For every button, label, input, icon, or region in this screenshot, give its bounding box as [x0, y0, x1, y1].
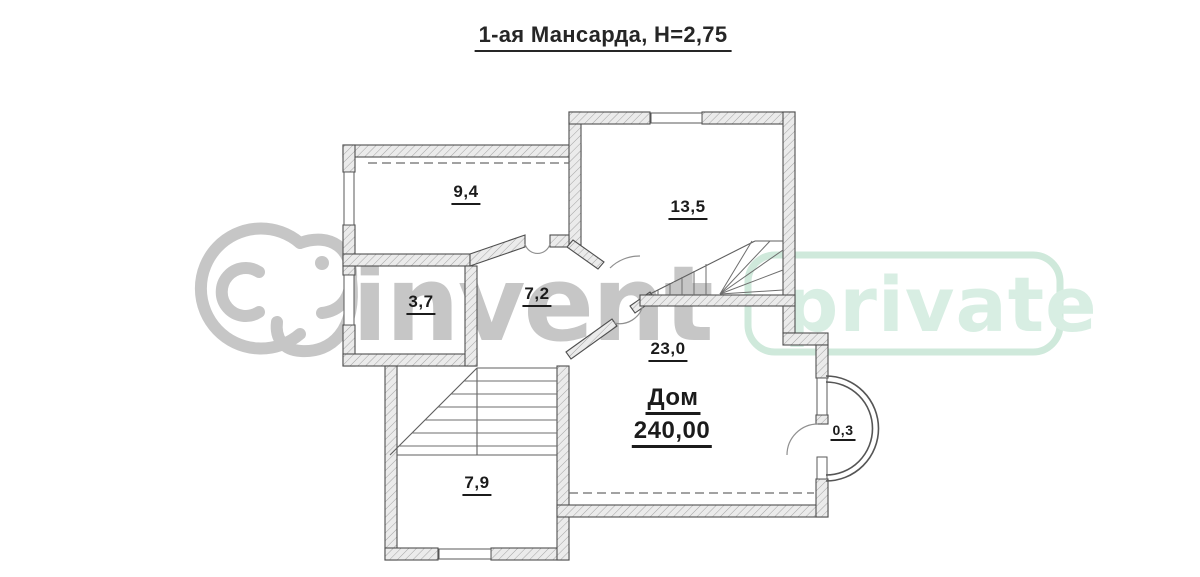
room-area-label-3-7: 3,7 [406, 293, 435, 315]
room-area-label-7-2: 7,2 [522, 285, 551, 307]
room-area-label-9-4: 9,4 [451, 183, 480, 205]
private-watermark-text: private [784, 260, 1098, 349]
house-total-area-label: 240,00 [632, 418, 712, 448]
floor-plan-canvas: invent private [0, 0, 1200, 577]
house-name-label: Дом [646, 385, 701, 415]
room-area-label-23-0: 23,0 [648, 340, 687, 362]
page-title: 1-ая Мансарда, Н=2,75 [475, 22, 732, 52]
room-area-label-13-5: 13,5 [668, 198, 707, 220]
staircase-straight [390, 368, 557, 455]
room-area-label-7-9: 7,9 [462, 474, 491, 496]
floorplan-page: invent private [0, 0, 1200, 577]
elephant-logo-icon [201, 228, 352, 351]
bay-area-label-0-3: 0,3 [831, 423, 856, 441]
